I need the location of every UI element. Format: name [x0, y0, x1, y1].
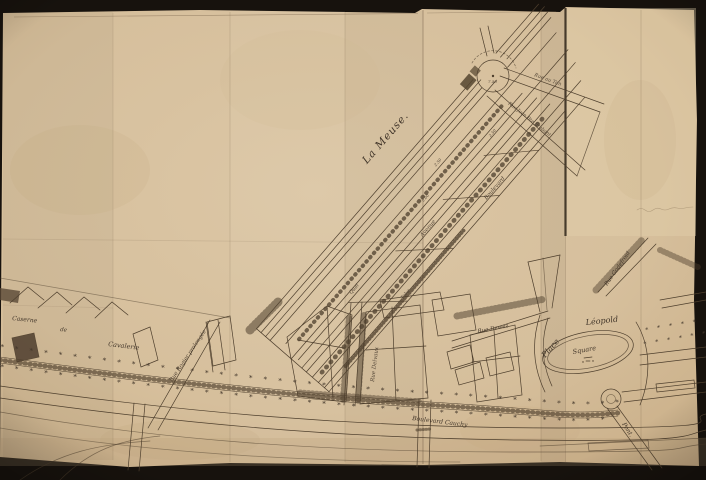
map-canvas: Quai Avenue Boulevard Talus 2.50 5.00 2.…: [0, 0, 706, 480]
archival-map-photo: Quai Avenue Boulevard Talus 2.50 5.00 2.…: [0, 0, 706, 480]
vignette: [0, 0, 706, 480]
